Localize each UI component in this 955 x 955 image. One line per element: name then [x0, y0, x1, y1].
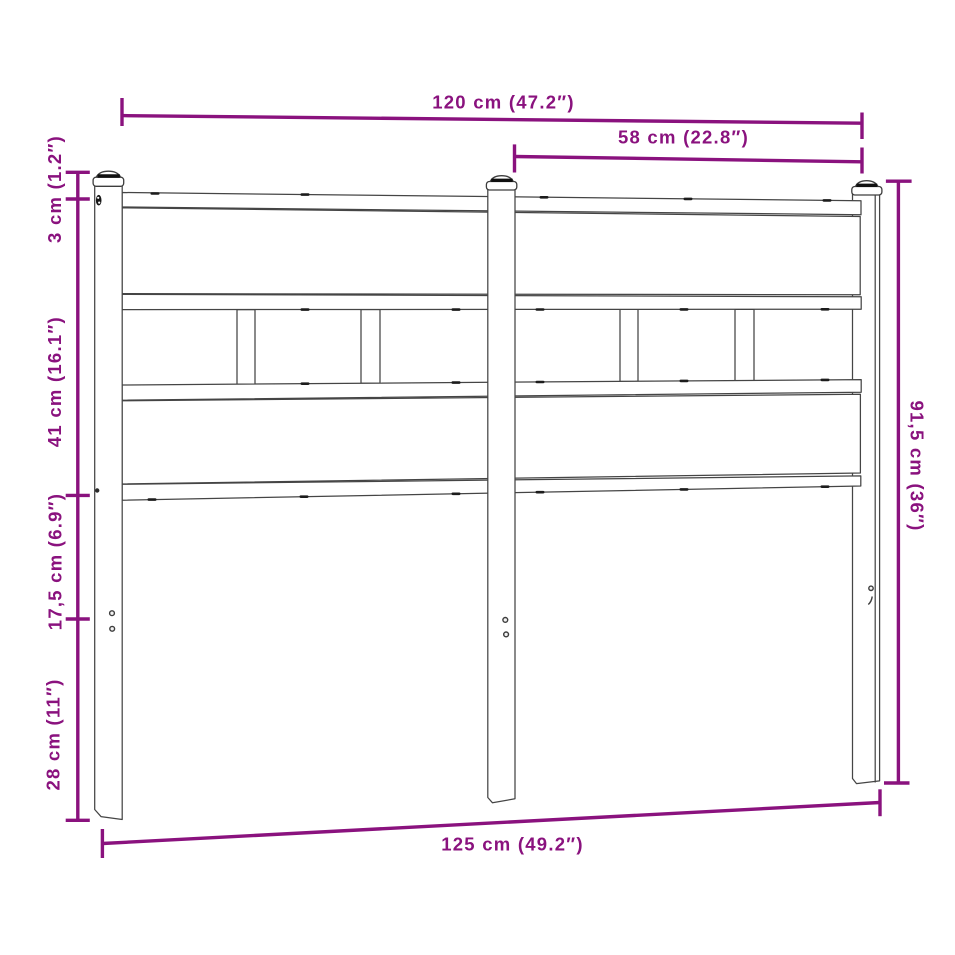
svg-text:28 cm (11″): 28 cm (11″) [42, 678, 63, 790]
svg-text:3 cm (1.2″): 3 cm (1.2″) [44, 135, 65, 243]
svg-text:41 cm (16.1″): 41 cm (16.1″) [44, 316, 65, 447]
svg-text:58 cm (22.8″): 58 cm (22.8″) [618, 127, 749, 148]
svg-text:17,5 cm (6.9″): 17,5 cm (6.9″) [44, 493, 65, 630]
svg-text:91,5 cm (36″): 91,5 cm (36″) [907, 400, 928, 531]
svg-text:125 cm (49.2″): 125 cm (49.2″) [441, 833, 584, 854]
svg-text:120 cm (47.2″): 120 cm (47.2″) [432, 92, 575, 113]
